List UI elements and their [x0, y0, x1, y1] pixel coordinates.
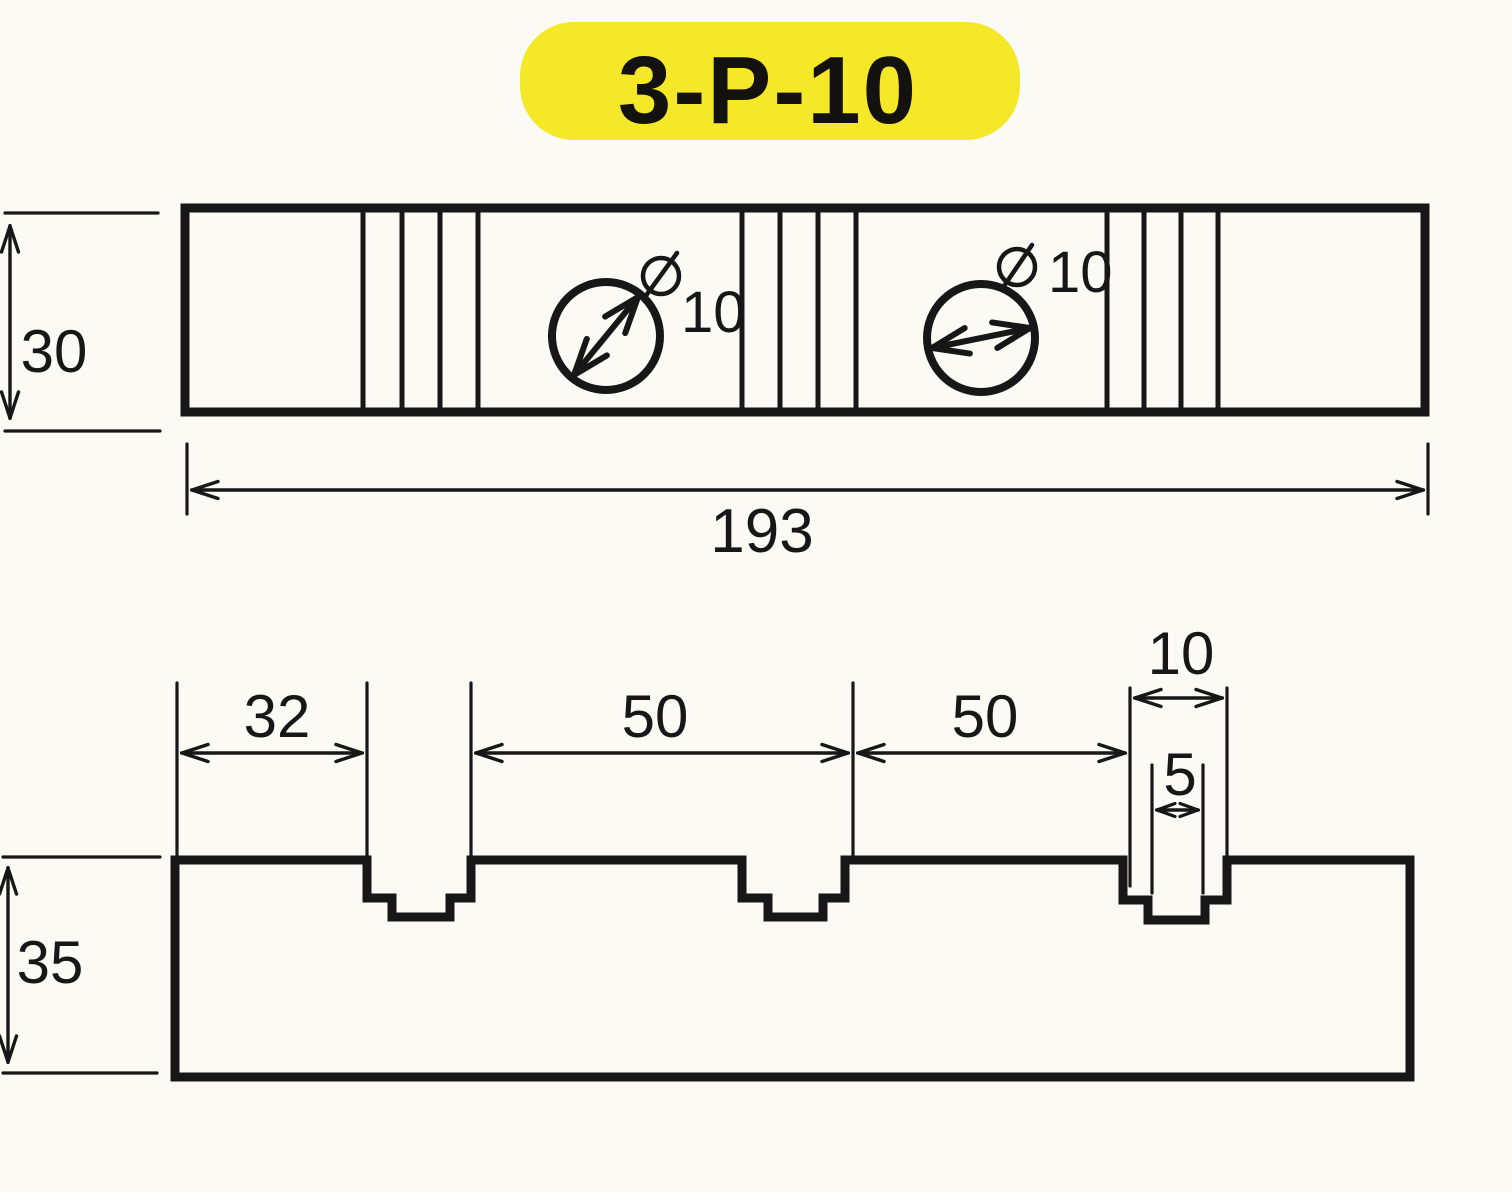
part-code-badge: 3-P-10	[520, 22, 1020, 144]
slot-lines-right	[1107, 212, 1218, 408]
dim-offset-32: 32	[177, 683, 367, 857]
hole-diameter-value: 10	[1048, 240, 1113, 305]
dim-spacing-50-first: 50	[471, 683, 853, 857]
dim-height-30: 30	[5, 213, 160, 431]
hole-1: 10	[552, 253, 746, 390]
dim-height-35: 35	[3, 857, 160, 1073]
dimension-value: 10	[1148, 620, 1215, 687]
dim-slot-inner-5: 5	[1152, 741, 1203, 893]
slot-lines-left	[363, 212, 478, 408]
dimension-value: 193	[710, 497, 813, 566]
top-view: 10 10	[185, 208, 1425, 412]
slot-lines-middle	[742, 212, 856, 408]
top-view-outline	[185, 208, 1425, 412]
dim-length-193: 193	[187, 444, 1428, 566]
engineering-drawing: 3-P-10	[0, 0, 1512, 1192]
hole-diameter-value: 10	[681, 280, 746, 345]
section-outline	[175, 860, 1410, 1077]
diameter-arrow	[932, 328, 1030, 348]
dim-spacing-50-second: 50	[858, 683, 1125, 753]
section-view	[175, 860, 1410, 1077]
part-code-text: 3-P-10	[618, 37, 918, 144]
diameter-symbol-icon	[999, 245, 1035, 289]
dimension-value: 30	[21, 318, 88, 385]
diameter-arrow	[574, 297, 638, 375]
dimension-value: 50	[622, 683, 689, 750]
dimension-value: 32	[244, 683, 311, 750]
dimension-value: 5	[1163, 741, 1196, 808]
dimension-value: 50	[952, 683, 1019, 750]
dimension-value: 35	[17, 929, 84, 996]
hole-2: 10	[927, 240, 1113, 392]
diameter-symbol-icon	[643, 253, 679, 297]
